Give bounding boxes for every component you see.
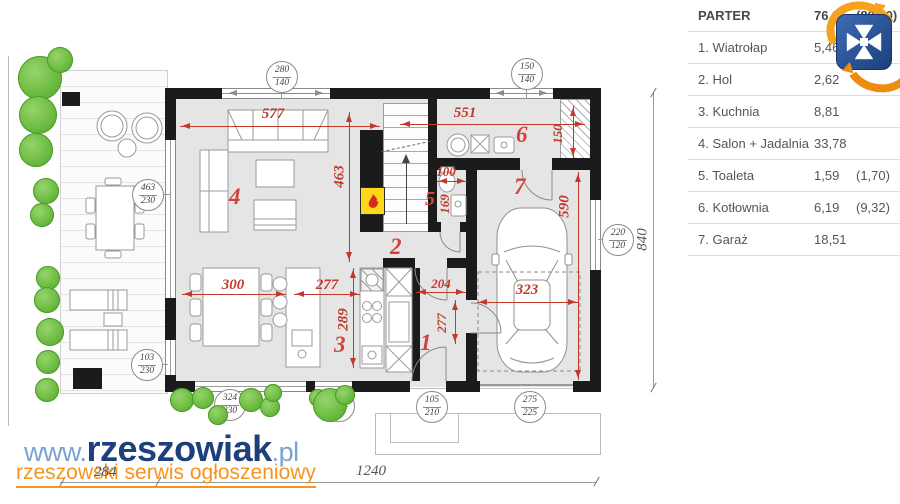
bush bbox=[35, 378, 59, 402]
dim-323: 323 bbox=[504, 282, 550, 299]
dim-277: 277 bbox=[307, 277, 347, 294]
door-tag-105-210: 105210 bbox=[416, 391, 448, 423]
legend-row-toilet: 5. Toaleta 1,59 (1,70) bbox=[688, 160, 900, 192]
legend-row-living-room: 4. Salon + Jadalnia 33,78 bbox=[688, 128, 900, 160]
room-label: 4. Salon + Jadalnia bbox=[688, 136, 814, 151]
wall bbox=[590, 88, 601, 200]
flame-icon bbox=[366, 193, 380, 210]
bush bbox=[19, 133, 53, 167]
wall bbox=[352, 381, 410, 392]
room-7-garage: 7 bbox=[514, 174, 526, 200]
legend-row-boiler-room: 6. Kotłownia 6,19 (9,32) bbox=[688, 192, 900, 224]
room-area: 18,51 bbox=[814, 232, 856, 247]
floor-plan-page: 577 551 463 150 100 169 590 323 300 277 … bbox=[0, 0, 900, 504]
fireplace bbox=[360, 187, 385, 215]
plot-boundary-line bbox=[8, 56, 9, 426]
room-area-alt: (1,70) bbox=[856, 168, 900, 183]
stairs-arrow-head-icon bbox=[402, 150, 410, 163]
room-area: 1,59 bbox=[814, 168, 856, 183]
bush bbox=[335, 385, 355, 405]
window-width: 463 bbox=[139, 183, 157, 195]
bush bbox=[34, 287, 60, 313]
dim-tick bbox=[650, 382, 656, 392]
window-height: 230 bbox=[141, 196, 155, 207]
window-width: 150 bbox=[518, 62, 536, 74]
dim-line bbox=[578, 172, 579, 380]
wall bbox=[446, 381, 480, 392]
bush bbox=[170, 388, 194, 412]
dim-line bbox=[437, 181, 467, 182]
window-tag-150-140: 150140 bbox=[511, 58, 543, 90]
dim-551: 551 bbox=[440, 105, 490, 122]
toilet-wall bbox=[428, 222, 441, 232]
room-label: 2. Hol bbox=[688, 72, 814, 87]
wall bbox=[165, 298, 176, 340]
room-3-kitchen: 3 bbox=[334, 332, 346, 358]
dim-1240: 1240 bbox=[356, 463, 386, 480]
room-area-alt: (9,32) bbox=[856, 200, 900, 215]
dim-line bbox=[353, 268, 354, 368]
window-garage bbox=[590, 200, 601, 270]
window-tag-220-120: 220120 bbox=[602, 224, 634, 256]
dim-line bbox=[294, 294, 360, 295]
bush bbox=[264, 384, 282, 402]
stairs-direction-arrow bbox=[406, 158, 407, 224]
window-tag-280-140: 280140 bbox=[266, 61, 298, 93]
terrace-wall-post bbox=[73, 368, 102, 389]
bush bbox=[19, 96, 57, 134]
room-label: 1. Wiatrołap bbox=[688, 40, 814, 55]
garage-wall bbox=[466, 333, 477, 381]
door-width: 275 bbox=[521, 395, 539, 407]
room-2-hall: 2 bbox=[390, 234, 402, 260]
door-height: 210 bbox=[425, 408, 439, 419]
wall bbox=[330, 88, 490, 99]
wall bbox=[590, 270, 601, 392]
room-area: 33,78 bbox=[814, 136, 856, 151]
dim-277b: 277 bbox=[434, 307, 450, 339]
dim-590: 590 bbox=[557, 190, 574, 224]
dim-100: 100 bbox=[428, 164, 464, 180]
dim-284: 284 bbox=[94, 464, 117, 481]
bush bbox=[47, 47, 73, 73]
room-4-living-room: 4 bbox=[229, 184, 241, 210]
dim-840: 840 bbox=[635, 222, 652, 258]
window-width: 220 bbox=[609, 228, 627, 240]
dim-300: 300 bbox=[210, 277, 256, 294]
room-label: 6. Kotłownia bbox=[688, 200, 814, 215]
boiler-room-wall bbox=[552, 158, 590, 170]
window-height: 140 bbox=[275, 78, 289, 89]
garage-wall bbox=[466, 163, 477, 300]
bush bbox=[36, 350, 60, 374]
garage-door bbox=[480, 384, 573, 386]
bush bbox=[192, 387, 214, 409]
dim-463: 463 bbox=[332, 159, 349, 195]
window-dim-arrow bbox=[227, 93, 325, 94]
room-1-vestibule: 1 bbox=[420, 330, 432, 356]
window-terrace bbox=[165, 140, 176, 298]
dim-169: 169 bbox=[437, 188, 453, 220]
dim-line bbox=[455, 300, 456, 344]
dim-150: 150 bbox=[550, 118, 566, 150]
window-height: 140 bbox=[520, 75, 534, 86]
room-6-boiler-room: 6 bbox=[516, 122, 528, 148]
legend-row-kitchen: 3. Kuchnia 8,81 bbox=[688, 96, 900, 128]
bush bbox=[208, 405, 228, 425]
toilet-wall bbox=[460, 222, 466, 232]
fireplace-wall bbox=[360, 213, 383, 232]
window-height: 120 bbox=[611, 241, 625, 252]
room-5-toilet: 5 bbox=[425, 188, 435, 211]
terrace-wall-post bbox=[62, 92, 80, 106]
window-tag-103-230: 103230 bbox=[131, 349, 163, 381]
dim-line bbox=[180, 126, 380, 127]
window-width: 324 bbox=[221, 393, 239, 405]
window-side bbox=[165, 340, 176, 375]
room-area: 8,81 bbox=[814, 104, 856, 119]
bush bbox=[36, 318, 64, 346]
dim-line bbox=[182, 294, 286, 295]
door-width: 105 bbox=[423, 395, 441, 407]
garage-door-tag-275-225: 275225 bbox=[514, 391, 546, 423]
plot-depth-dim-line bbox=[653, 92, 654, 388]
dim-577: 577 bbox=[248, 106, 298, 123]
dim-line bbox=[573, 106, 574, 158]
bush bbox=[33, 178, 59, 204]
dim-line bbox=[349, 112, 350, 262]
window-height: 230 bbox=[140, 366, 154, 377]
window-dim-arrow bbox=[494, 93, 549, 94]
door-height: 225 bbox=[523, 408, 537, 419]
wall bbox=[165, 88, 176, 140]
garage-door-line bbox=[480, 388, 573, 389]
wall bbox=[573, 381, 601, 392]
terrace-deck bbox=[60, 70, 168, 394]
bush bbox=[30, 203, 54, 227]
entrance-threshold bbox=[410, 388, 446, 389]
legend-title: PARTER bbox=[688, 8, 814, 23]
dim-204: 204 bbox=[421, 276, 461, 292]
fireplace-wall bbox=[360, 130, 383, 187]
room-label: 7. Garaż bbox=[688, 232, 814, 247]
rzeszowiak-logo bbox=[824, 0, 900, 82]
room-area: 6,19 bbox=[814, 200, 856, 215]
window-width: 280 bbox=[273, 65, 291, 77]
window-width: 103 bbox=[138, 353, 156, 365]
logo-arrow-icon bbox=[875, 0, 894, 14]
watermark-tagline: rzeszowski serwis ogłoszeniowy bbox=[16, 461, 316, 488]
room-label: 5. Toaleta bbox=[688, 168, 814, 183]
hall-wall bbox=[447, 258, 466, 268]
legend-row-garage: 7. Garaż 18,51 bbox=[688, 224, 900, 256]
vestibule-wall bbox=[412, 268, 420, 381]
room-label: 3. Kuchnia bbox=[688, 104, 814, 119]
dim-line bbox=[477, 302, 578, 303]
dim-line bbox=[416, 292, 466, 293]
window-tag-463-230: 463230 bbox=[132, 179, 164, 211]
